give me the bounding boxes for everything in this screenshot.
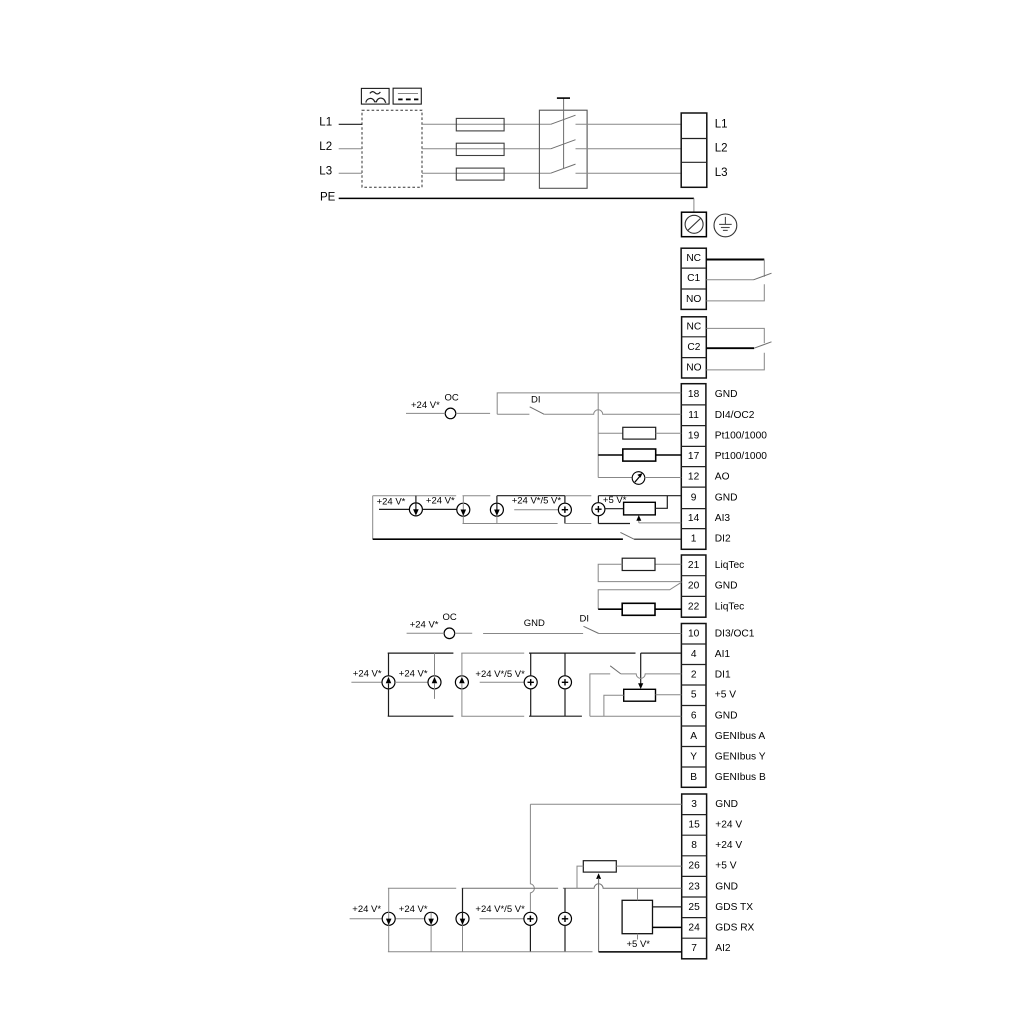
- svg-text:GENIbus Y: GENIbus Y: [715, 752, 766, 763]
- svg-text:26: 26: [688, 861, 700, 872]
- svg-text:AI2: AI2: [715, 943, 731, 954]
- svg-text:Pt100/1000: Pt100/1000: [715, 431, 767, 442]
- svg-text:L3: L3: [319, 166, 332, 178]
- svg-text:6: 6: [691, 710, 697, 721]
- svg-text:20: 20: [688, 581, 700, 592]
- svg-text:+24 V*/5 V*: +24 V*/5 V*: [475, 904, 525, 915]
- svg-text:+24 V: +24 V: [715, 840, 742, 851]
- svg-text:+24 V*: +24 V*: [352, 904, 381, 915]
- svg-text:+24 V*: +24 V*: [411, 400, 440, 411]
- svg-text:2: 2: [691, 669, 697, 680]
- svg-text:23: 23: [688, 881, 700, 892]
- svg-text:GND: GND: [524, 618, 545, 629]
- svg-text:GDS RX: GDS RX: [715, 923, 754, 934]
- svg-text:DI2: DI2: [715, 534, 731, 545]
- svg-text:B: B: [690, 772, 697, 783]
- svg-text:L1: L1: [715, 119, 728, 131]
- svg-text:GND: GND: [715, 799, 738, 810]
- svg-text:AI1: AI1: [715, 649, 731, 660]
- svg-text:C2: C2: [687, 342, 700, 353]
- svg-text:L2: L2: [319, 141, 332, 153]
- svg-text:L2: L2: [715, 143, 728, 155]
- svg-text:12: 12: [688, 471, 700, 482]
- svg-text:22: 22: [688, 601, 700, 612]
- svg-text:L3: L3: [715, 167, 728, 179]
- svg-text:A: A: [690, 731, 697, 742]
- svg-text:+24 V*: +24 V*: [426, 495, 455, 506]
- svg-text:C1: C1: [687, 273, 700, 284]
- svg-text:18: 18: [688, 389, 700, 400]
- svg-text:4: 4: [691, 649, 697, 660]
- svg-text:3: 3: [691, 799, 697, 810]
- svg-text:DI: DI: [580, 614, 590, 625]
- svg-text:LiqTec: LiqTec: [715, 601, 744, 612]
- svg-text:7: 7: [691, 943, 697, 954]
- svg-text:+24 V*/5 V*: +24 V*/5 V*: [512, 495, 562, 506]
- svg-text:+24 V*: +24 V*: [399, 904, 428, 915]
- svg-text:NO: NO: [686, 362, 701, 373]
- svg-text:GND: GND: [715, 389, 738, 400]
- svg-text:10: 10: [688, 628, 700, 639]
- svg-text:GND: GND: [715, 492, 738, 503]
- svg-text:GENIbus B: GENIbus B: [715, 772, 766, 783]
- svg-text:DI: DI: [531, 394, 541, 405]
- svg-text:19: 19: [688, 431, 700, 442]
- svg-text:GND: GND: [715, 581, 738, 592]
- svg-text:11: 11: [688, 410, 699, 421]
- svg-text:+24 V*: +24 V*: [353, 668, 382, 679]
- svg-text:Y: Y: [690, 752, 697, 763]
- svg-text:PE: PE: [320, 192, 336, 204]
- svg-text:AI3: AI3: [715, 513, 731, 524]
- svg-text:DI1: DI1: [715, 669, 731, 680]
- svg-text:AO: AO: [715, 471, 730, 482]
- svg-text:DI3/OC1: DI3/OC1: [715, 628, 755, 639]
- svg-text:8: 8: [691, 840, 697, 851]
- svg-text:+24 V: +24 V: [715, 820, 742, 831]
- svg-text:GND: GND: [715, 710, 738, 721]
- svg-text:5: 5: [691, 690, 697, 701]
- svg-text:DI4/OC2: DI4/OC2: [715, 410, 755, 421]
- svg-text:15: 15: [688, 820, 700, 831]
- svg-text:GDS TX: GDS TX: [715, 902, 753, 913]
- svg-text:NC: NC: [687, 322, 702, 333]
- svg-text:+24 V*: +24 V*: [377, 496, 406, 507]
- svg-text:1: 1: [691, 534, 697, 545]
- svg-text:NO: NO: [686, 294, 701, 305]
- svg-text:GENIbus A: GENIbus A: [715, 731, 766, 742]
- svg-text:+24 V*/5 V*: +24 V*/5 V*: [475, 669, 525, 680]
- svg-text:+5 V*: +5 V*: [627, 939, 651, 950]
- svg-text:17: 17: [688, 451, 700, 462]
- svg-text:L1: L1: [319, 116, 332, 128]
- svg-text:21: 21: [688, 560, 700, 571]
- svg-text:14: 14: [688, 513, 700, 524]
- svg-text:+24 V*: +24 V*: [399, 668, 428, 679]
- svg-text:+5 V: +5 V: [715, 690, 736, 701]
- svg-text:24: 24: [688, 923, 700, 934]
- svg-text:OC: OC: [445, 393, 459, 404]
- svg-text:Pt100/1000: Pt100/1000: [715, 451, 767, 462]
- svg-text:GND: GND: [715, 881, 738, 892]
- svg-text:NC: NC: [686, 253, 701, 264]
- svg-text:LiqTec: LiqTec: [715, 560, 744, 571]
- svg-text:25: 25: [688, 902, 700, 913]
- svg-text:+24 V*: +24 V*: [410, 619, 439, 630]
- svg-text:+5 V: +5 V: [715, 861, 736, 872]
- svg-text:OC: OC: [443, 612, 457, 623]
- svg-text:9: 9: [691, 492, 697, 503]
